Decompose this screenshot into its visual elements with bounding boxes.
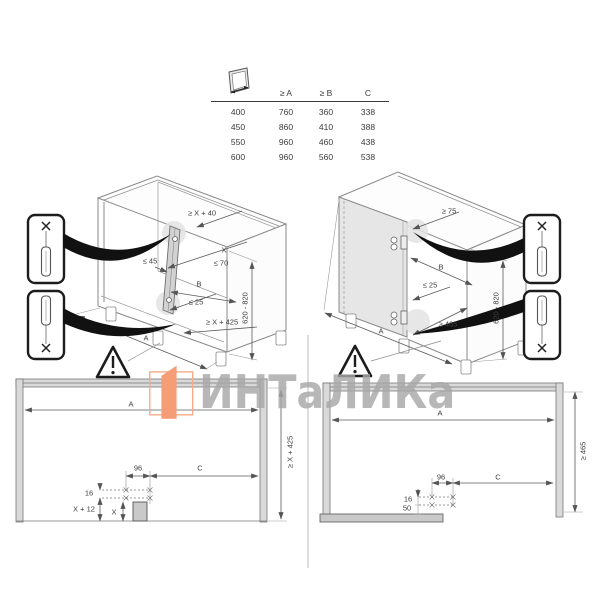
table-cell: 388	[346, 119, 390, 134]
dim-label: C	[495, 473, 500, 481]
dim-label: 620 - 820	[241, 292, 249, 324]
dim-label: ≤ 45	[143, 257, 158, 265]
right-cabinet-drawing	[324, 172, 528, 376]
dim-label: A	[437, 409, 442, 417]
table-cell: 410	[306, 119, 346, 134]
table-cell: 550	[210, 134, 266, 149]
dim-label: C	[197, 464, 202, 472]
rail-callout-top-icon	[28, 215, 64, 283]
left-plan-drawing	[16, 379, 287, 522]
column-header: C	[346, 57, 390, 101]
dim-label: 16	[85, 489, 93, 497]
right-plan-drawing	[320, 383, 583, 522]
table-cell: 400	[210, 104, 266, 119]
table-cell: 360	[306, 104, 346, 119]
dim-label: A	[128, 400, 133, 408]
dim-label: ≥ X + 425	[286, 436, 294, 468]
table-separator	[211, 101, 389, 102]
technical-drawing-page: ≥ A ≥ B C 400 760 360 338 450 860 410 38…	[0, 0, 600, 600]
dim-label: 96	[134, 464, 142, 472]
dim-label: ≤ 25	[423, 281, 438, 289]
rail-callout-bottom-icon	[28, 291, 64, 359]
dim-label: B	[438, 263, 443, 271]
column-header: ≥ B	[306, 57, 346, 101]
table-cell: 960	[266, 150, 306, 165]
table-cell: 960	[266, 134, 306, 149]
dim-label: 50	[403, 504, 411, 512]
dim-label: 16	[404, 495, 412, 503]
table-cell: 538	[346, 150, 390, 165]
table-cell: 338	[346, 104, 390, 119]
dim-label: X	[111, 508, 116, 516]
table-cell: 438	[346, 134, 390, 149]
table-cell: 760	[266, 104, 306, 119]
table-cell: 450	[210, 119, 266, 134]
dimension-table: ≥ A ≥ B C 400 760 360 338 450 860 410 38…	[210, 57, 390, 165]
dim-label: X + 12	[73, 505, 95, 513]
fitting-block	[133, 502, 147, 521]
left-cabinet-drawing	[76, 176, 286, 377]
dim-label: A	[378, 327, 383, 335]
dim-label: ≤ 70	[214, 259, 229, 267]
warning-triangle-icon	[97, 343, 160, 377]
bottom-panel	[320, 514, 443, 522]
rail-callout-bottom-icon	[524, 291, 560, 359]
dim-label: 96	[437, 473, 445, 481]
dim-label: X	[221, 246, 226, 254]
dim-label: A	[143, 334, 148, 342]
dim-label: ≥ 465	[579, 442, 587, 461]
door-width-icon	[210, 57, 266, 101]
table-cell: 860	[266, 119, 306, 134]
table-cell: 560	[306, 150, 346, 165]
dim-label: ≤ 25	[189, 298, 204, 306]
dim-label: ≥ 465	[439, 320, 458, 328]
rail-callout-top-icon	[524, 215, 560, 283]
column-header: ≥ A	[266, 57, 306, 101]
dim-label: ≥ 75	[442, 207, 457, 215]
dim-label: ≥ X + 425	[206, 318, 238, 326]
dim-label: 620 - 820	[492, 292, 500, 324]
dim-label: ≥ X + 40	[188, 209, 216, 217]
table-cell: 460	[306, 134, 346, 149]
dim-label: B	[196, 280, 201, 288]
table-cell: 600	[210, 150, 266, 165]
